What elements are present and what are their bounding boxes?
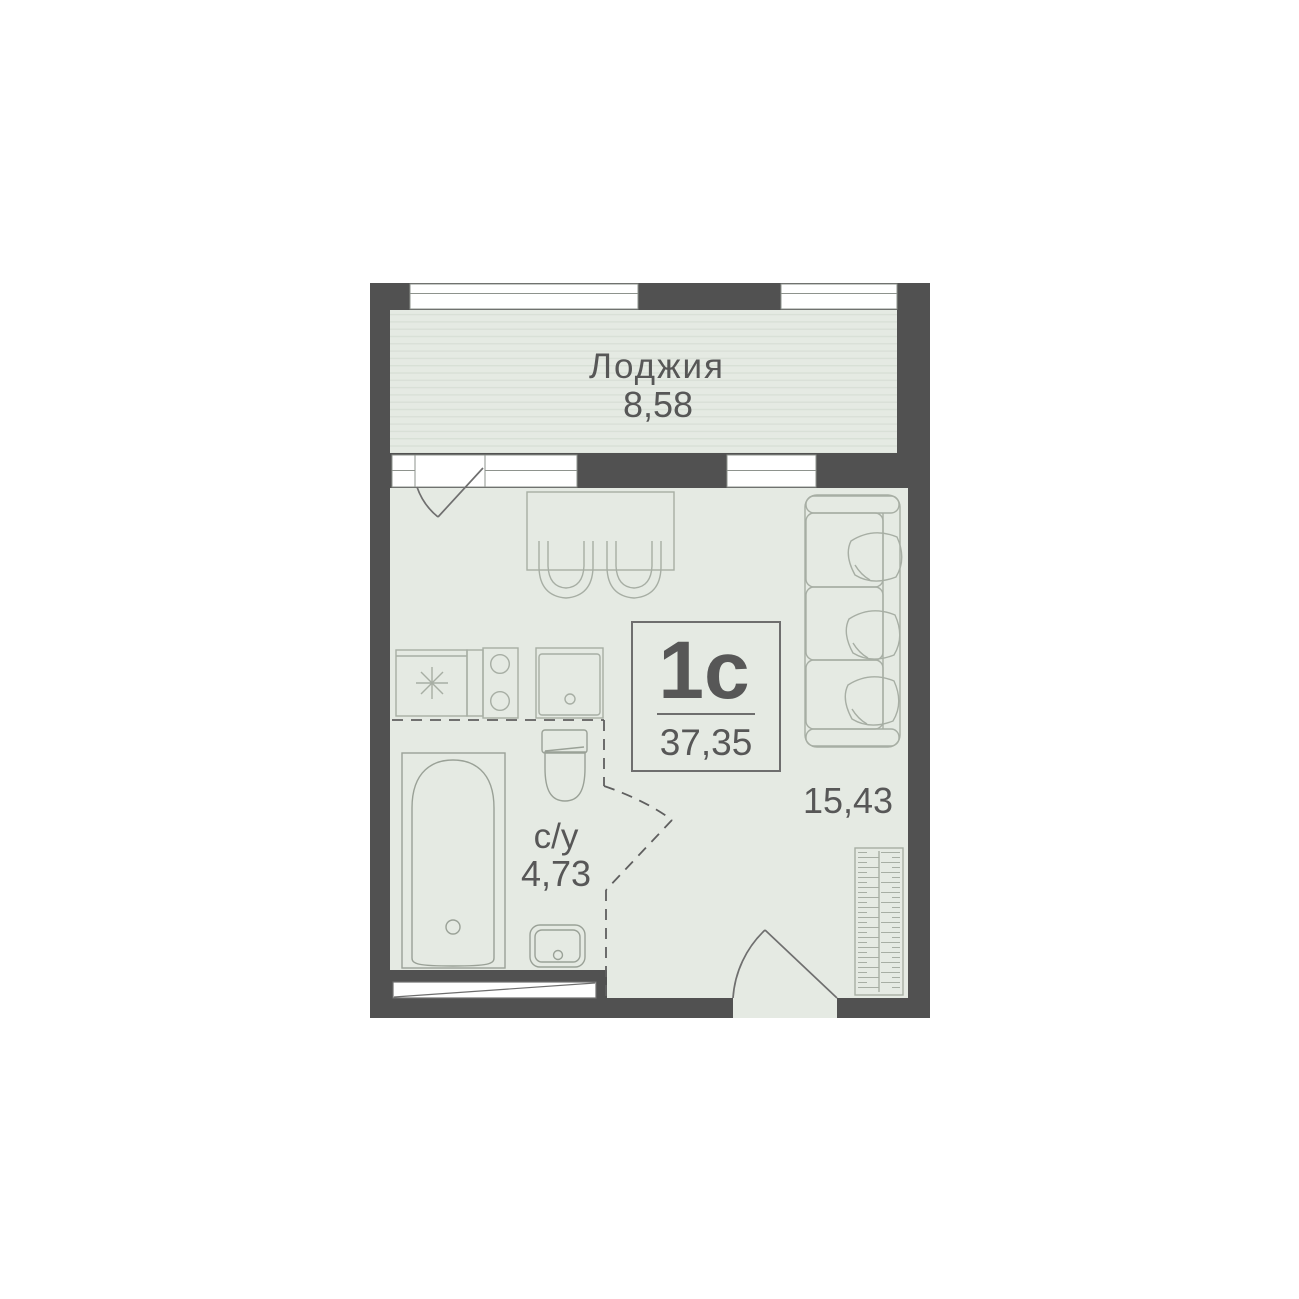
wardrobe: [855, 848, 903, 995]
window-top-right: [781, 284, 897, 309]
unit-area-label: 37,35: [660, 722, 753, 763]
bathroom-label: с/у: [534, 817, 579, 856]
unit-type-label: 1с: [658, 625, 749, 716]
ventilation-shaft: [393, 982, 596, 998]
entrance-opening-floor: [733, 988, 837, 1018]
wall-bottom-right: [837, 998, 930, 1018]
bathroom-area-label: 4,73: [521, 853, 591, 894]
window-top-left: [410, 284, 638, 309]
loggia-label: Лоджия: [589, 347, 725, 386]
living-room-floor: [390, 487, 908, 1000]
floor-plan-page: Лоджия 8,58 1с 37,35 15,43 с/у 4,73: [0, 0, 1299, 1299]
floor-plan: Лоджия 8,58 1с 37,35 15,43 с/у 4,73: [0, 0, 1299, 1299]
wall-right: [908, 486, 930, 1018]
living-room-area-label: 15,43: [803, 780, 893, 821]
loggia-area-label: 8,58: [623, 384, 693, 425]
balcony-door-opening: [415, 455, 485, 487]
wall-left: [370, 283, 390, 1018]
